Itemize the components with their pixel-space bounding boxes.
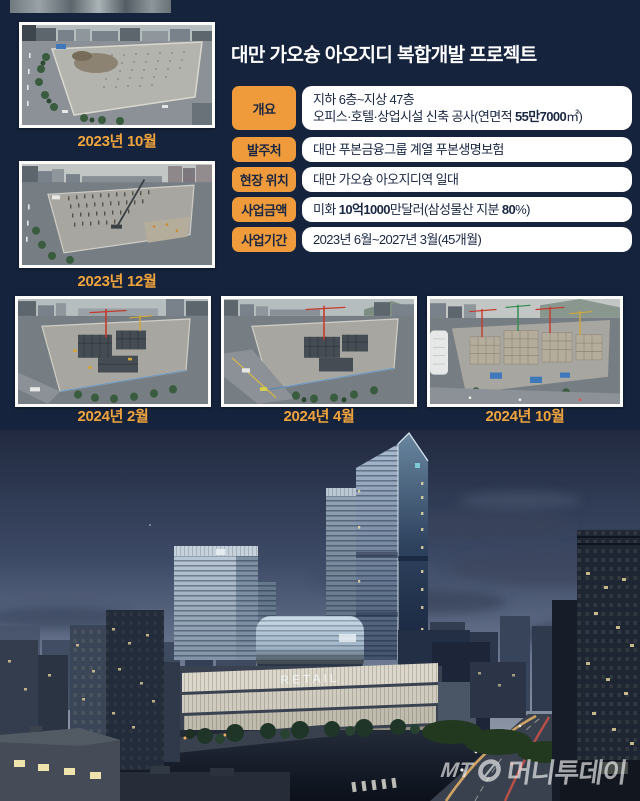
photo-caption-2024-04: 2024년 4월 [221,407,417,427]
photo-2023-10 [19,22,215,128]
table-label-overview: 개요 [232,86,296,130]
photo-2023-12-image [22,164,212,265]
table-label-client: 발주처 [232,137,296,162]
table-row-client: 발주처 대만 푸본금융그룹 계열 푸본생명보험 [232,137,632,162]
table-row-overview: 개요 지하 6층~지상 47층오피스·호텔·상업시설 신축 공사(연면적 55만… [232,86,632,130]
table-value-amount: 미화 10억1000만달러(삼성물산 지분 80%) [302,197,632,222]
watermark-mt-text: MT [440,759,475,783]
cropped-photo-strip [10,0,171,13]
table-value-client: 대만 푸본금융그룹 계열 푸본생명보험 [302,137,632,162]
table-value-overview: 지하 6층~지상 47층오피스·호텔·상업시설 신축 공사(연면적 55만700… [302,86,632,130]
table-row-period: 사업기간 2023년 6월~2027년 3월(45개월) [232,227,632,252]
photo-caption-2023-12: 2023년 12월 [19,272,215,292]
moneytoday-watermark: MT 머니투데이 [439,751,630,790]
project-rendering: RETAIL [0,430,640,801]
photo-2024-04 [221,296,417,407]
glass-podium-box [256,616,364,674]
infographic-root: { "colors": { "background": "#15233C", "… [0,0,640,801]
moneytoday-logo-icon [476,758,505,783]
photo-2024-04-image [224,299,414,404]
table-row-amount: 사업금액 미화 10억1000만달러(삼성물산 지분 80%) [232,197,632,222]
photo-2023-12 [19,161,215,268]
table-label-location: 현장 위치 [232,167,296,192]
page-title: 대만 가오슝 아오지디 복합개발 프로젝트 [231,44,537,68]
tower-logo-light [415,463,420,468]
photo-2024-10 [427,296,623,407]
photo-caption-2024-02: 2024년 2월 [15,407,211,427]
table-value-location: 대만 가오슝 아오지디역 일대 [302,167,632,192]
table-label-period: 사업기간 [232,227,296,252]
photo-2024-02-image [18,299,208,404]
photo-2024-02 [15,296,211,407]
watermark-brand-text: 머니투데이 [505,751,630,790]
retail-sign: RETAIL [280,671,340,687]
photo-2024-10-image [430,299,620,404]
table-row-location: 현장 위치 대만 가오슝 아오지디역 일대 [232,167,632,192]
table-label-amount: 사업금액 [232,197,296,222]
photo-2023-10-image [22,25,212,125]
photo-caption-2024-10: 2024년 10월 [427,407,623,427]
rendering-scene: RETAIL [0,430,640,801]
photo-caption-2023-10: 2023년 10월 [19,132,215,152]
table-value-period: 2023년 6월~2027년 3월(45개월) [302,227,632,252]
